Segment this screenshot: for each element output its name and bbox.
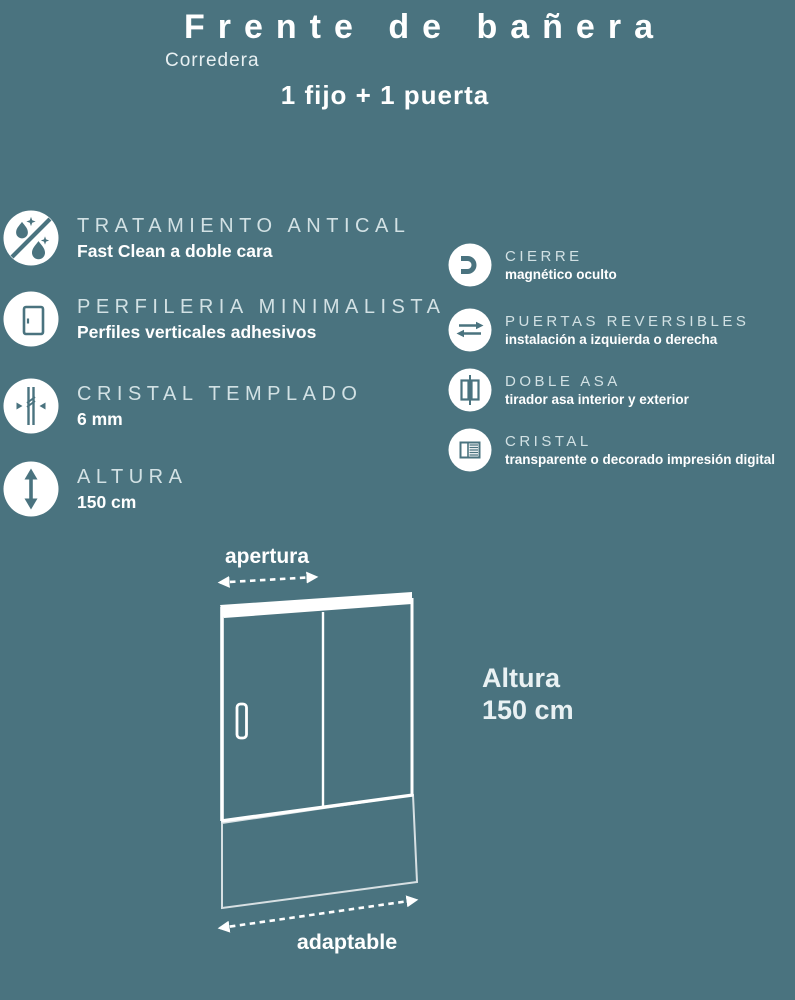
page-subtitle: Corredera [165, 50, 260, 72]
feature-doble-asa: DOBLE ASA tirador asa interior y exterio… [448, 368, 689, 412]
feature-subtitle: tirador asa interior y exterior [505, 392, 689, 407]
feature-puertas-reversibles: PUERTAS REVERSIBLES instalación a izquie… [448, 308, 749, 352]
feature-altura: ALTURA 150 cm [3, 461, 187, 517]
diagram-height-label: Altura 150 cm [482, 663, 574, 727]
feature-title: CIERRE [505, 248, 617, 265]
magnet-icon [448, 243, 492, 287]
feature-cierre: CIERRE magnético oculto [448, 243, 617, 287]
feature-title: TRATAMIENTO ANTICAL [77, 215, 410, 238]
door-handle [237, 704, 247, 738]
glass-finish-icon [448, 428, 492, 472]
bath-screen-diagram: apertura adaptable [160, 530, 520, 980]
apertura-label: apertura [225, 545, 309, 568]
height-label-line2: 150 cm [482, 695, 574, 727]
feature-subtitle: transparente o decorado impresión digita… [505, 452, 775, 467]
height-arrow-icon [3, 461, 59, 517]
feature-subtitle: Perfiles verticales adhesivos [77, 322, 445, 343]
feature-subtitle: 6 mm [77, 409, 362, 430]
configuration-label: 1 fijo + 1 puerta [160, 80, 610, 111]
feature-title: CRISTAL TEMPLADO [77, 383, 362, 406]
feature-subtitle: Fast Clean a doble cara [77, 241, 410, 262]
feature-cristal: CRISTAL transparente o decorado impresió… [448, 428, 775, 472]
anti-limescale-icon [3, 210, 59, 266]
top-rail [220, 592, 412, 618]
feature-title: PERFILERIA MINIMALISTA [77, 296, 445, 319]
page-title: Frente de bañera [55, 8, 795, 47]
feature-subtitle: instalación a izquierda o derecha [505, 332, 749, 347]
infographic-page: Frente de bañera Corredera 1 fijo + 1 pu… [0, 0, 795, 1000]
height-label-line1: Altura [482, 663, 574, 695]
feature-perfileria: PERFILERIA MINIMALISTA Perfiles vertical… [3, 291, 445, 347]
apertura-arrow [220, 577, 316, 583]
feature-antical: TRATAMIENTO ANTICAL Fast Clean a doble c… [3, 210, 410, 266]
reversible-arrows-icon [448, 308, 492, 352]
feature-title: PUERTAS REVERSIBLES [505, 313, 749, 330]
feature-title: CRISTAL [505, 433, 775, 450]
adaptable-label: adaptable [297, 930, 397, 954]
feature-subtitle: 150 cm [77, 492, 187, 513]
feature-title: DOBLE ASA [505, 373, 689, 390]
feature-cristal-templado: CRISTAL TEMPLADO 6 mm [3, 378, 362, 434]
double-handle-icon [448, 368, 492, 412]
bathtub-outline [222, 795, 417, 908]
feature-subtitle: magnético oculto [505, 267, 617, 282]
minimal-profile-door-icon [3, 291, 59, 347]
screen-frame [220, 592, 413, 821]
feature-title: ALTURA [77, 466, 187, 489]
tempered-glass-icon [3, 378, 59, 434]
